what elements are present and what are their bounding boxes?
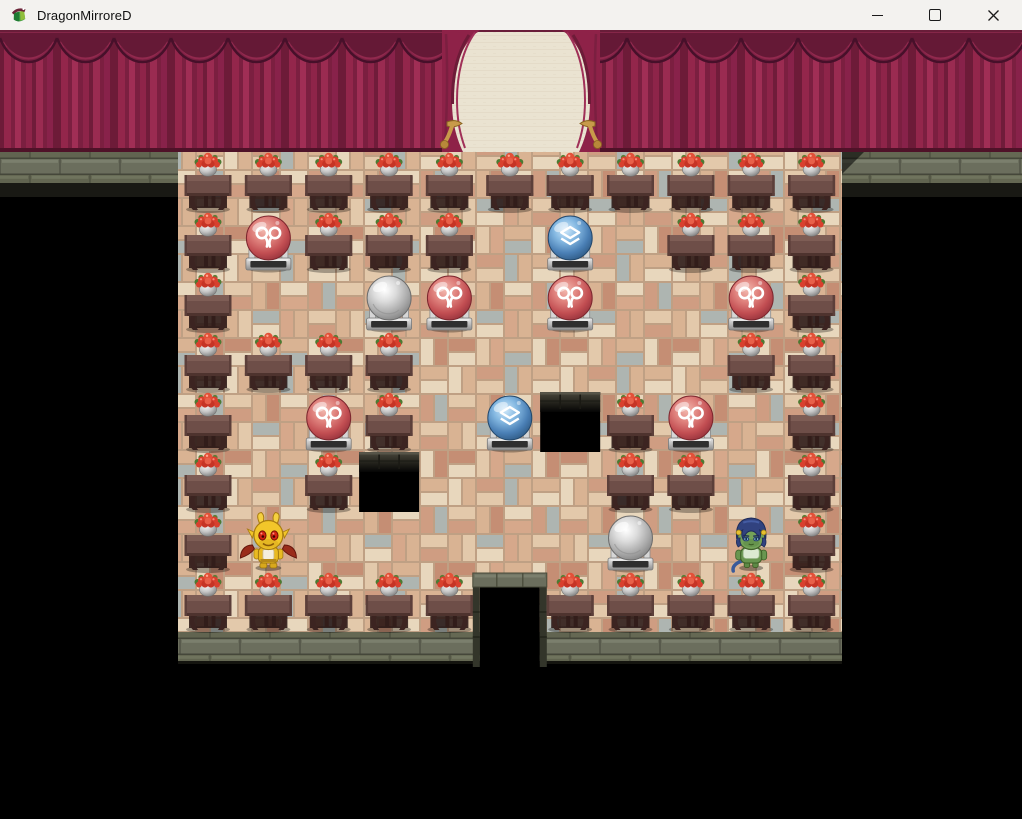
- maximize-icon: [929, 9, 941, 21]
- minimize-icon: [872, 15, 883, 16]
- south-doorway[interactable]: [473, 573, 547, 682]
- floor-pit: [359, 452, 419, 512]
- app-window: DragonMirroreD: [0, 0, 1022, 819]
- red-heart-orb[interactable]: [246, 216, 291, 273]
- titlebar: DragonMirroreD: [0, 0, 1022, 30]
- blue-orb[interactable]: [487, 396, 532, 453]
- game-area: [0, 30, 1022, 819]
- window-title: DragonMirroreD: [37, 8, 132, 23]
- silver-orb[interactable]: [367, 276, 412, 333]
- left-stone-wall-shadow: [0, 183, 178, 197]
- floor-pit: [540, 392, 600, 452]
- blue-orb[interactable]: [548, 216, 593, 273]
- right-stone-wall-shadow: [842, 183, 1022, 197]
- window-controls: [848, 0, 1022, 30]
- silver-orb[interactable]: [608, 516, 653, 573]
- right-stone-wall: [842, 152, 1022, 183]
- close-button[interactable]: [964, 0, 1022, 30]
- game-viewport[interactable]: [0, 30, 1022, 819]
- app-icon: [10, 6, 28, 24]
- red-heart-orb[interactable]: [729, 276, 774, 333]
- red-heart-orb[interactable]: [668, 396, 713, 453]
- red-heart-orb[interactable]: [548, 276, 593, 333]
- minimize-button[interactable]: [848, 0, 906, 30]
- red-heart-orb[interactable]: [427, 276, 472, 333]
- red-heart-orb[interactable]: [306, 396, 351, 453]
- maximize-button[interactable]: [906, 0, 964, 30]
- left-stone-wall: [0, 152, 178, 183]
- close-icon: [987, 9, 1000, 22]
